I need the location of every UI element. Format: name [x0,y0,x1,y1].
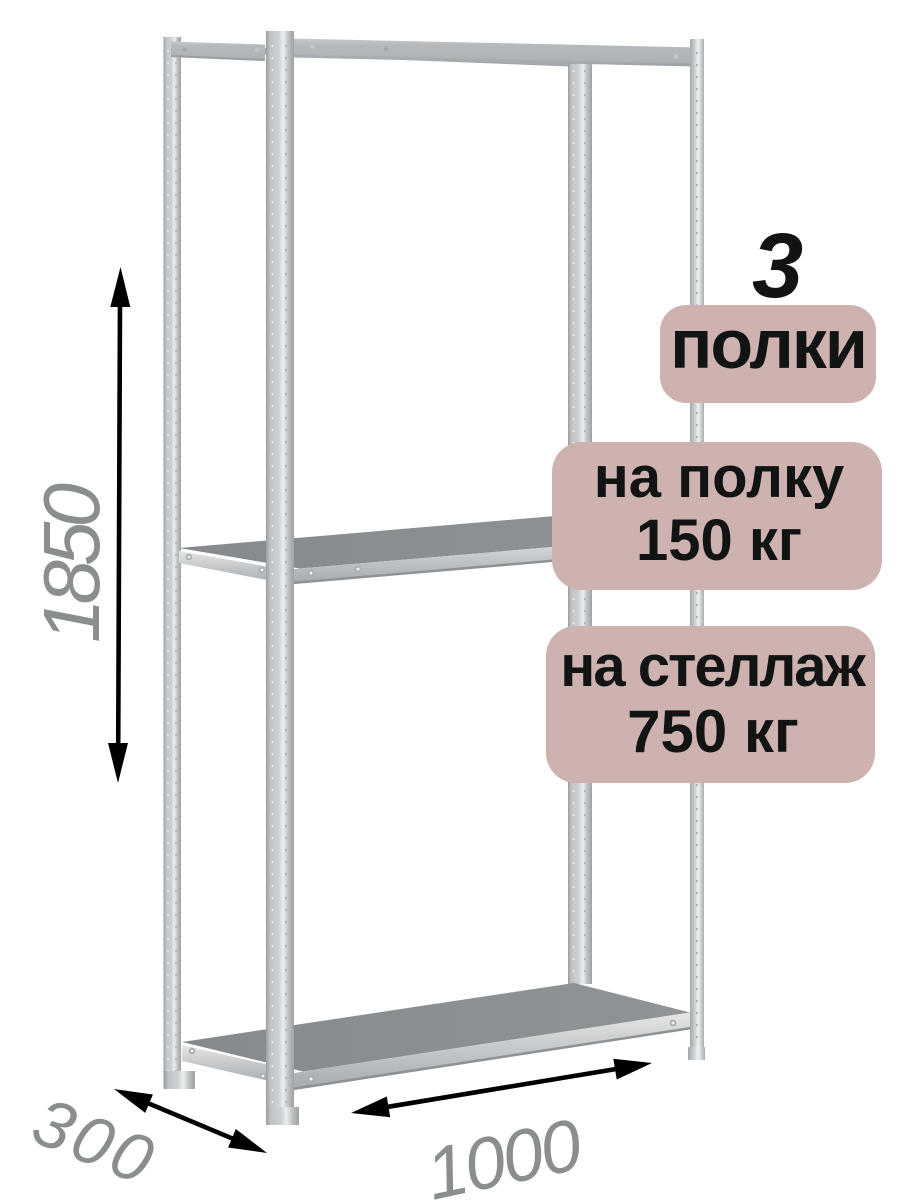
svg-text:полки: полки [670,305,866,383]
svg-text:1850: 1850 [27,484,116,643]
svg-text:750 кг: 750 кг [627,698,799,765]
svg-text:на стеллаж: на стеллаж [560,634,866,699]
svg-text:150 кг: 150 кг [636,508,802,573]
svg-text:на полку: на полку [594,445,845,510]
svg-text:3: 3 [752,215,803,317]
